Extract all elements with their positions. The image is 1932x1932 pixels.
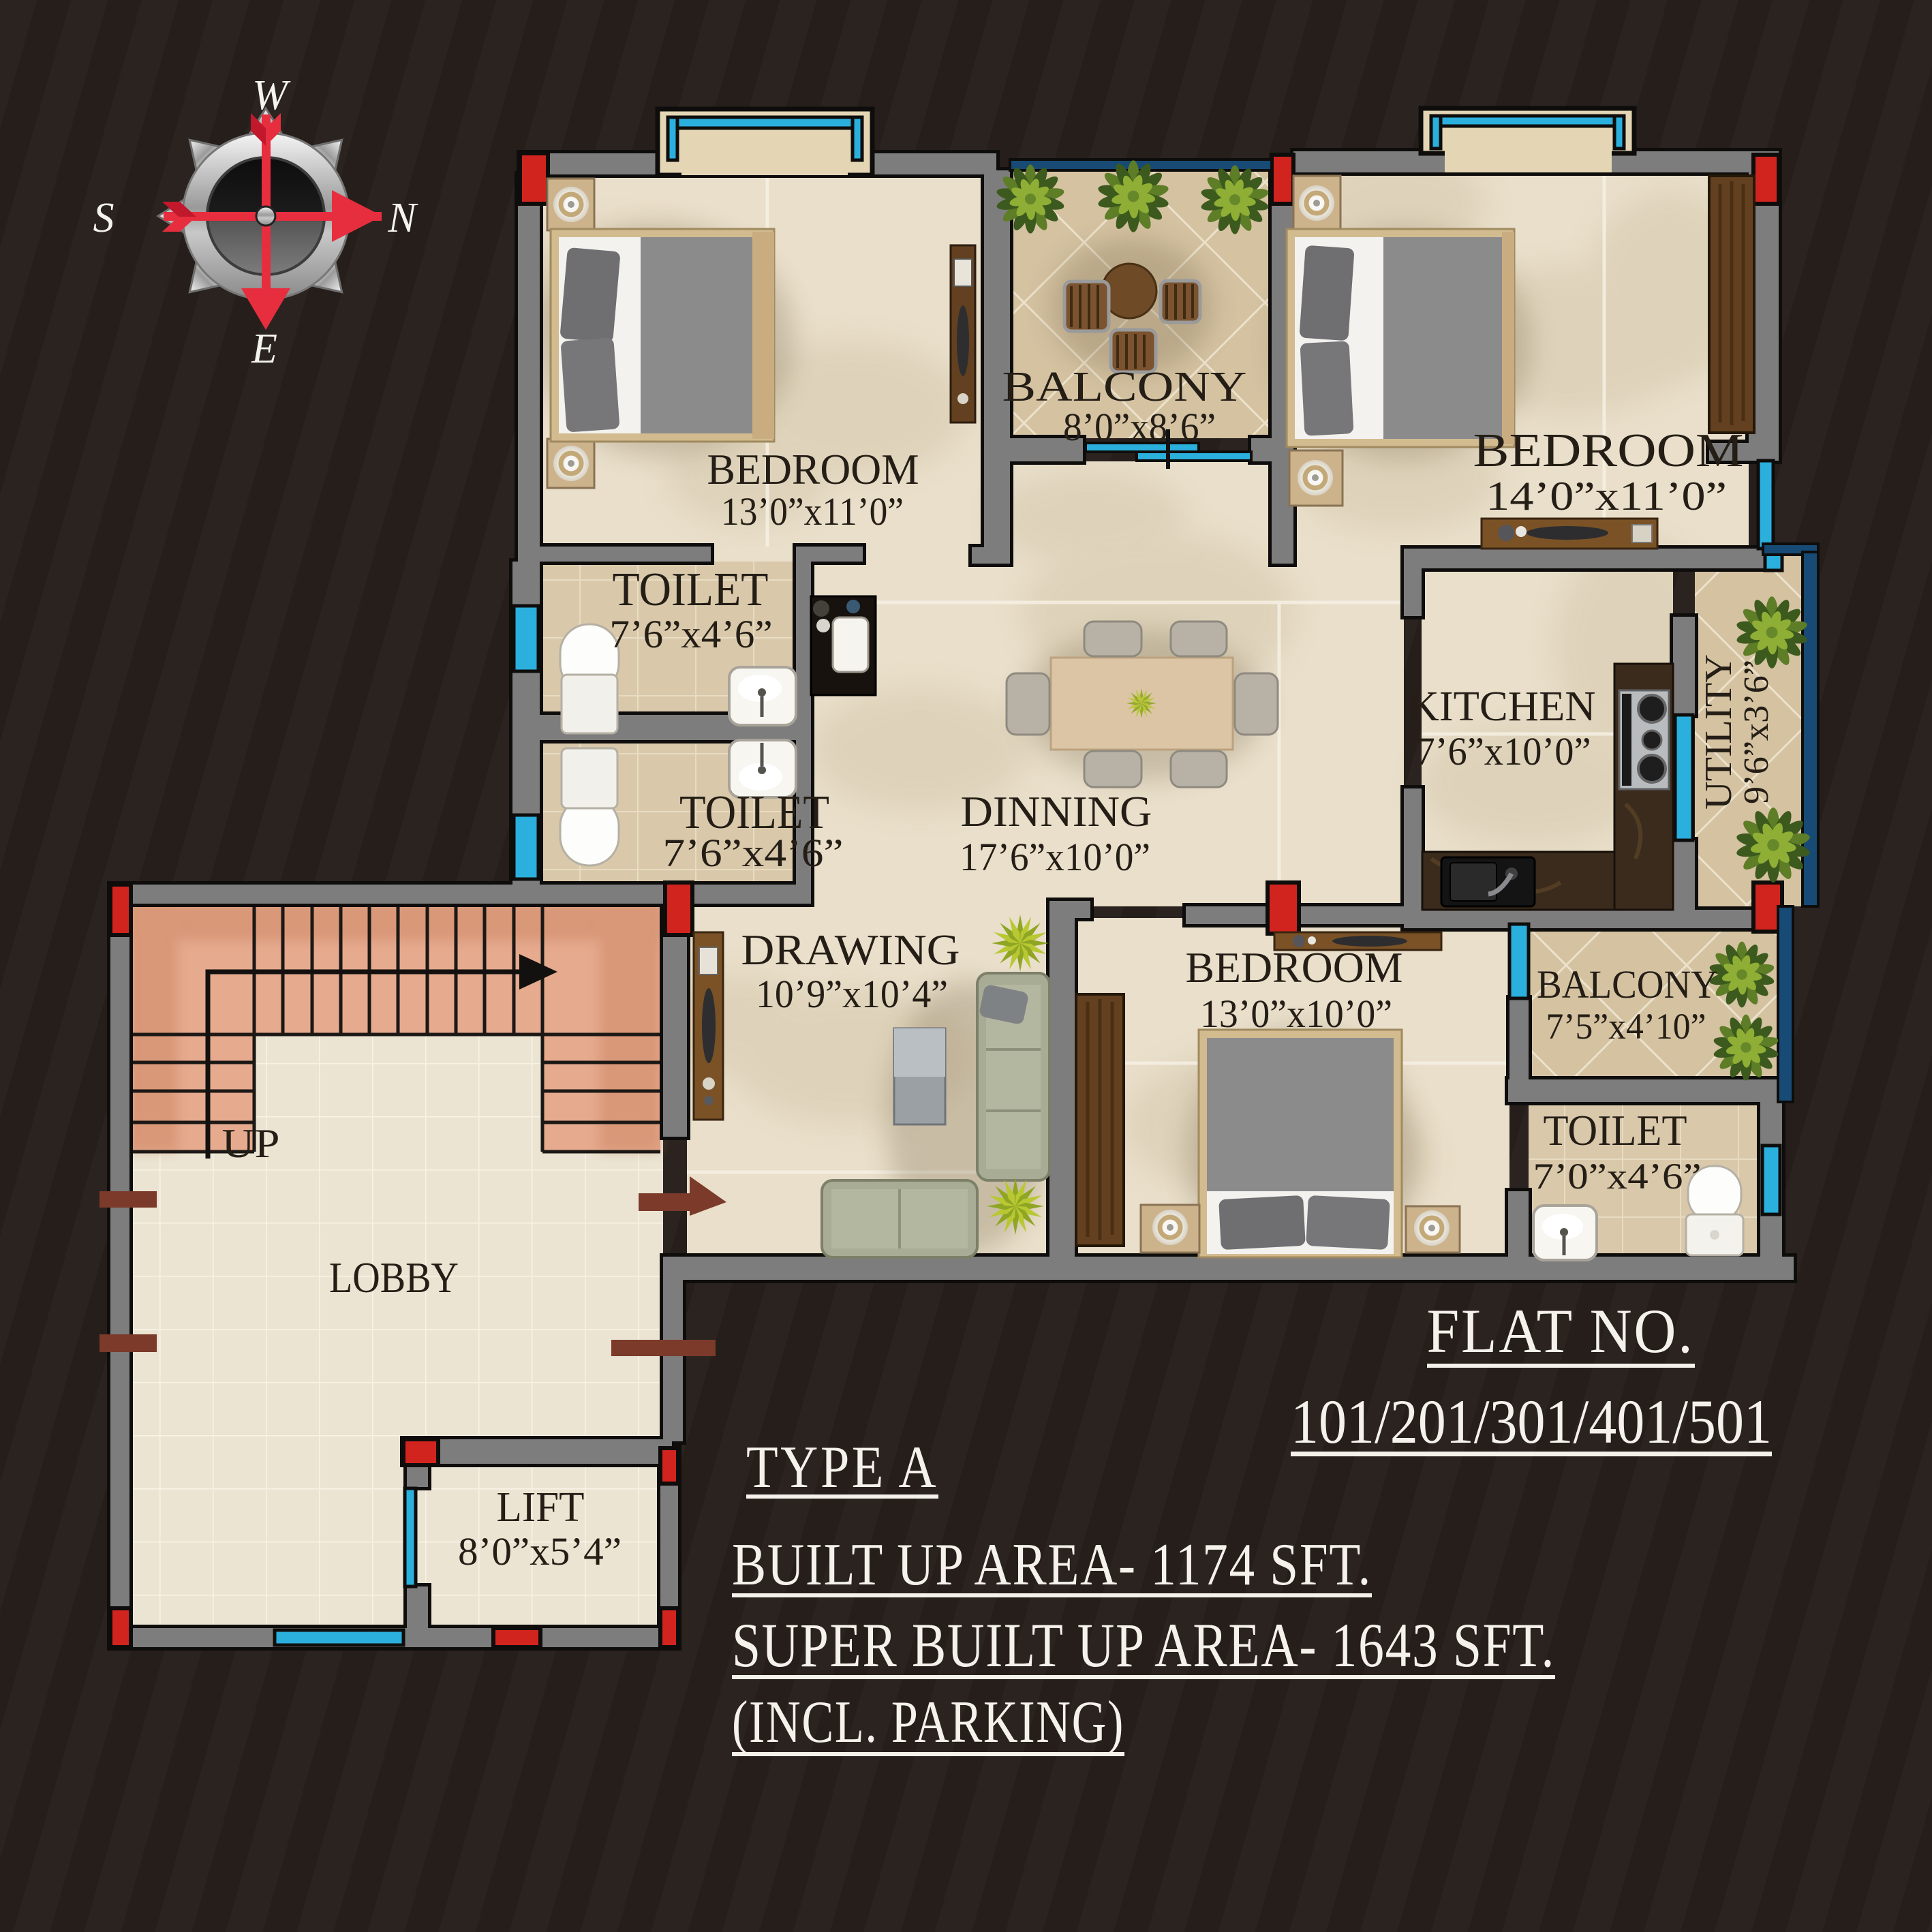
svg-text:TOILET: TOILET	[613, 564, 769, 616]
svg-text:E: E	[251, 326, 277, 372]
svg-text:BEDROOM: BEDROOM	[1186, 943, 1403, 992]
svg-text:UP: UP	[222, 1121, 280, 1166]
svg-text:7’6”x4’6”: 7’6”x4’6”	[663, 831, 844, 875]
svg-text:LOBBY: LOBBY	[329, 1253, 459, 1302]
svg-text:W: W	[252, 72, 291, 119]
svg-text:TOILET: TOILET	[1544, 1106, 1687, 1154]
svg-text:(INCL. PARKING): (INCL. PARKING)	[732, 1689, 1124, 1755]
svg-text:BALCONY: BALCONY	[1002, 364, 1247, 410]
svg-text:LIFT: LIFT	[497, 1484, 585, 1531]
svg-text:7’6”x10’0”: 7’6”x10’0”	[1416, 729, 1591, 773]
svg-text:BUILT UP AREA- 1174 SFT.: BUILT UP AREA- 1174 SFT.	[732, 1532, 1372, 1598]
svg-text:13’0”x10’0”: 13’0”x10’0”	[1200, 992, 1392, 1036]
svg-text:13’0”x11’0”: 13’0”x11’0”	[721, 489, 904, 534]
svg-text:DINNING: DINNING	[961, 787, 1152, 835]
svg-text:BEDROOM: BEDROOM	[1473, 425, 1744, 477]
svg-text:9’6”x3’6”: 9’6”x3’6”	[1737, 660, 1776, 804]
svg-text:7’6”x4’6”: 7’6”x4’6”	[610, 612, 773, 656]
svg-text:7’5”x4’10”: 7’5”x4’10”	[1546, 1006, 1706, 1047]
svg-text:FLAT NO.: FLAT NO.	[1427, 1296, 1695, 1366]
svg-text:17’6”x10’0”: 17’6”x10’0”	[960, 835, 1150, 879]
svg-text:DRAWING: DRAWING	[741, 925, 960, 974]
svg-text:UTILITY: UTILITY	[1698, 654, 1740, 810]
svg-text:SUPER BUILT UP AREA- 1643 SFT.: SUPER BUILT UP AREA- 1643 SFT.	[732, 1610, 1555, 1680]
svg-text:S: S	[93, 195, 114, 241]
svg-text:8’0”x8’6”: 8’0”x8’6”	[1063, 405, 1216, 449]
svg-text:8’0”x5’4”: 8’0”x5’4”	[458, 1529, 622, 1574]
svg-text:TYPE A: TYPE A	[746, 1435, 938, 1501]
svg-text:N: N	[387, 195, 418, 241]
svg-text:14’0”x11’0”: 14’0”x11’0”	[1486, 474, 1727, 519]
svg-text:10’9”x10’4”: 10’9”x10’4”	[756, 972, 948, 1016]
svg-text:BEDROOM: BEDROOM	[707, 445, 919, 493]
svg-text:KITCHEN: KITCHEN	[1409, 684, 1596, 730]
svg-text:BALCONY: BALCONY	[1537, 962, 1718, 1007]
svg-text:7’0”x4’6”: 7’0”x4’6”	[1533, 1156, 1702, 1197]
svg-text:101/201/301/401/501: 101/201/301/401/501	[1291, 1387, 1772, 1456]
